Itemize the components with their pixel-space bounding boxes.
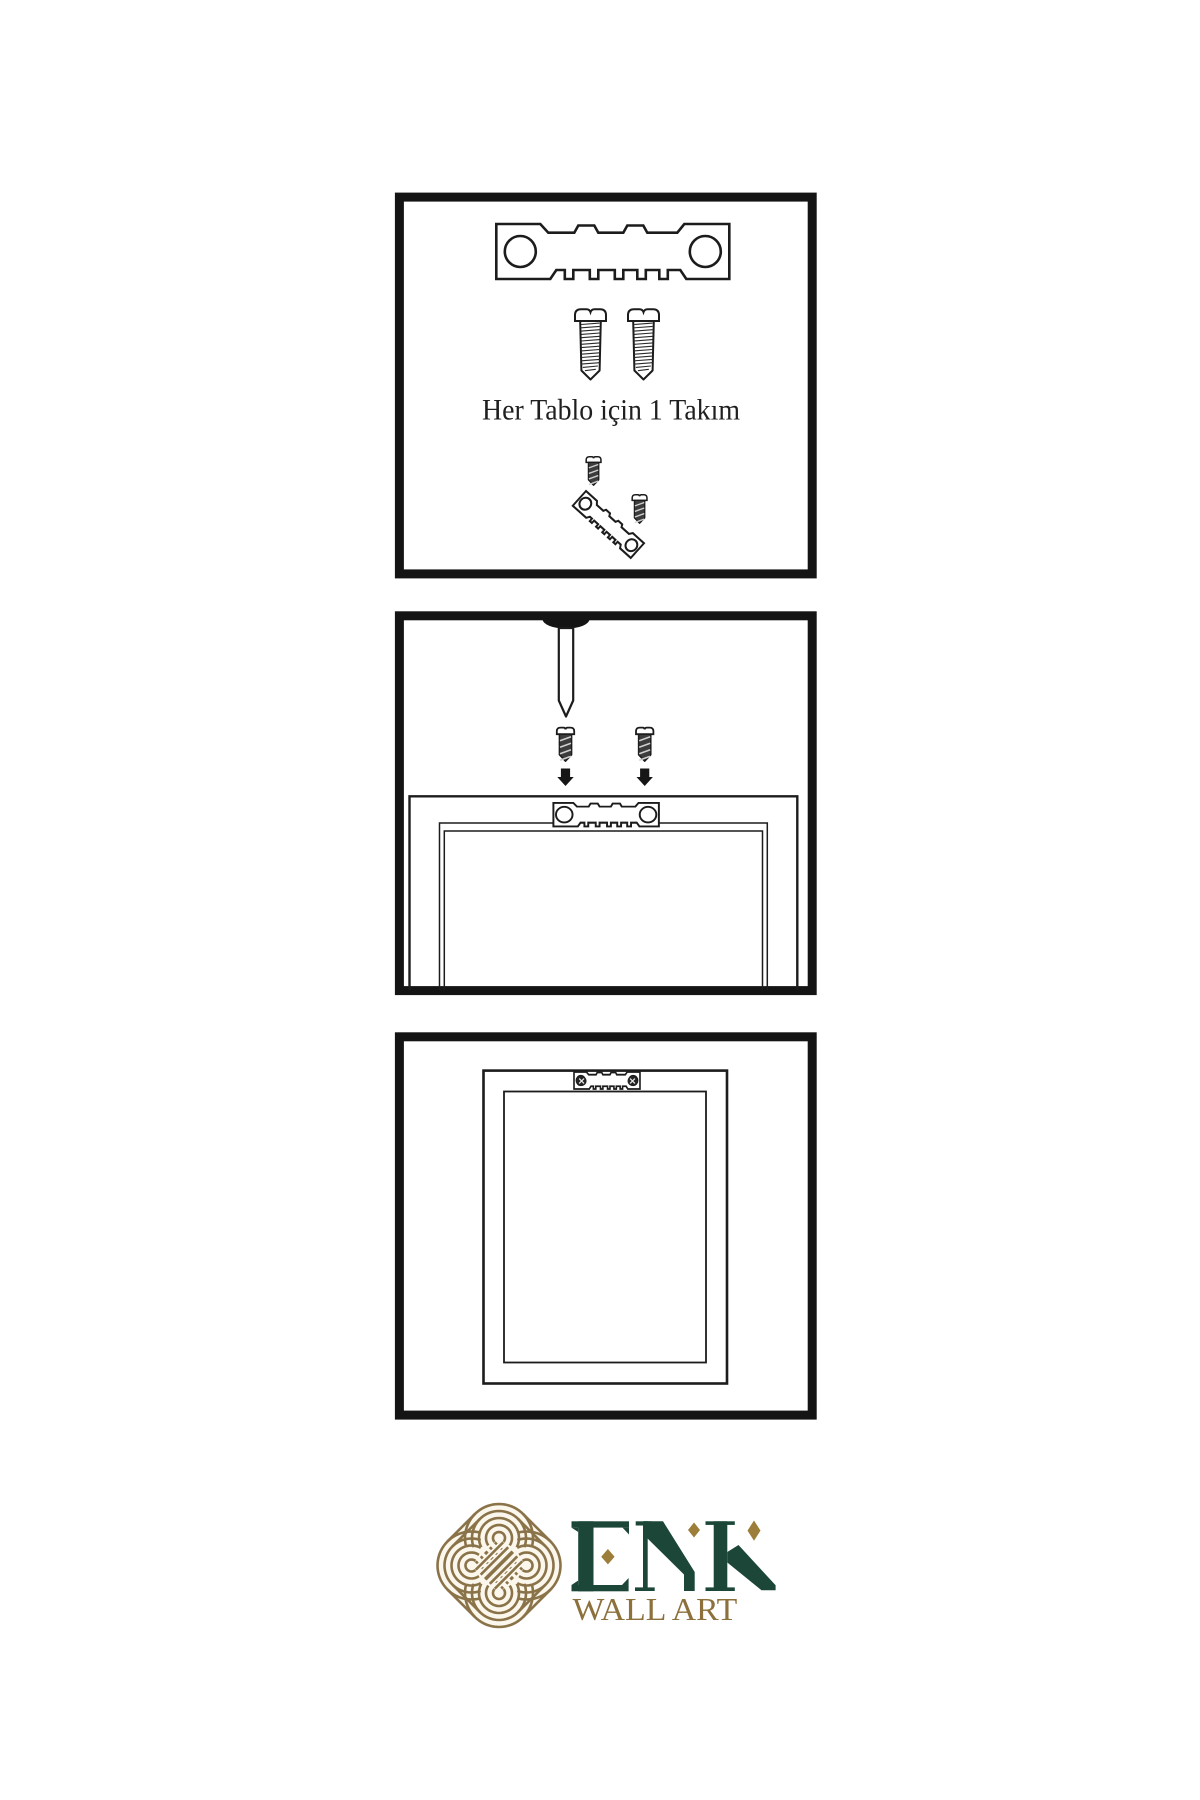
svg-text:WALL ART: WALL ART xyxy=(573,1591,738,1627)
svg-text:Her Tablo için 1 Takım: Her Tablo için 1 Takım xyxy=(482,394,740,427)
